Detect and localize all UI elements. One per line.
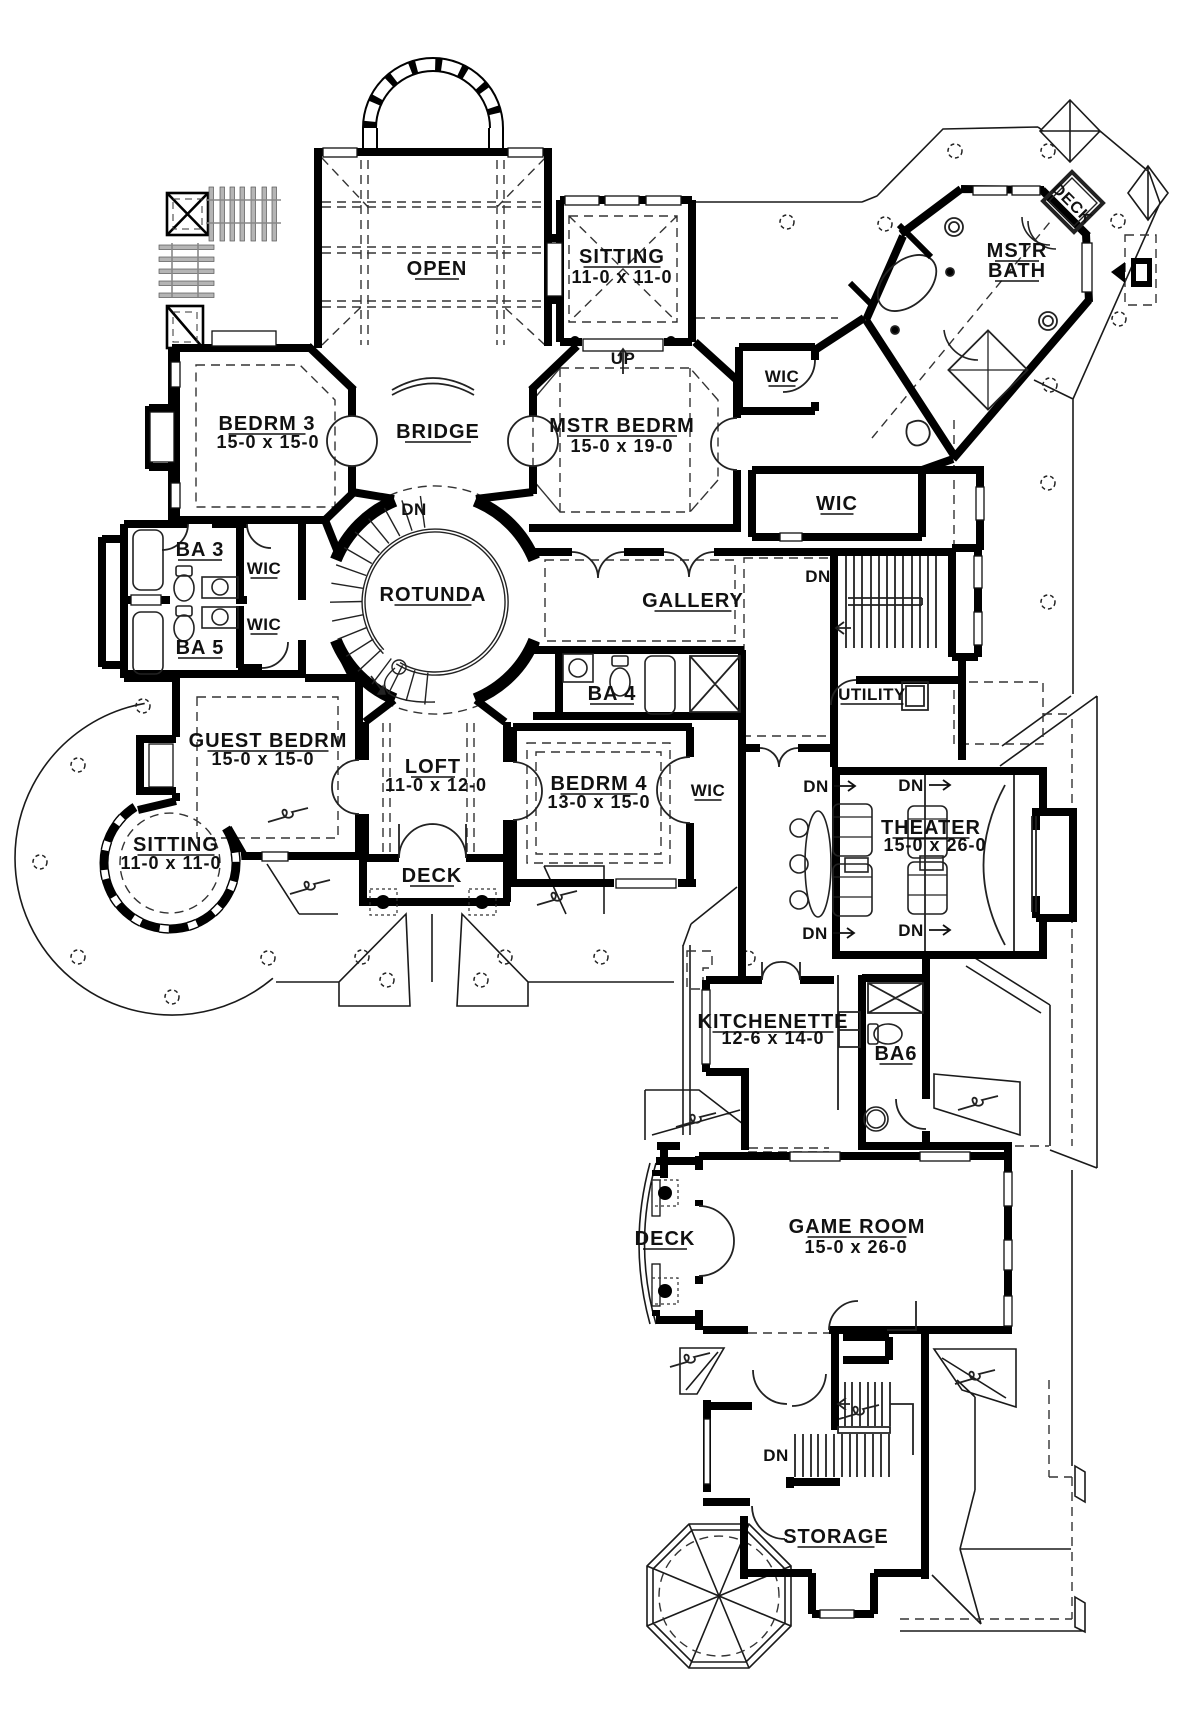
svg-text:15-0 x 15-0: 15-0 x 15-0 [211,749,314,769]
svg-text:BA 5: BA 5 [176,637,225,659]
svg-text:DN: DN [803,777,829,796]
svg-text:15-0 x 26-0: 15-0 x 26-0 [804,1237,907,1257]
svg-text:BRIDGE: BRIDGE [396,421,480,443]
svg-text:15-0 x 26-0: 15-0 x 26-0 [883,835,986,855]
svg-text:WIC: WIC [691,781,726,800]
svg-text:WIC: WIC [247,615,282,634]
svg-text:OPEN: OPEN [407,258,468,280]
svg-text:UP: UP [611,349,636,368]
svg-text:ROTUNDA: ROTUNDA [380,584,487,606]
svg-text:13-0 x 15-0: 13-0 x 15-0 [547,792,650,812]
svg-text:DN: DN [898,921,924,940]
svg-text:DN: DN [763,1446,789,1465]
svg-text:GALLERY: GALLERY [642,590,744,612]
svg-text:11-0 x 11-0: 11-0 x 11-0 [120,853,221,873]
svg-text:12-6 x 14-0: 12-6 x 14-0 [721,1028,824,1048]
svg-text:MSTR BEDRM: MSTR BEDRM [549,415,695,437]
svg-text:DN: DN [805,567,831,586]
svg-text:15-0 x 15-0: 15-0 x 15-0 [216,432,319,452]
svg-text:BA 3: BA 3 [176,539,225,561]
svg-text:11-0 x 11-0: 11-0 x 11-0 [571,267,672,287]
svg-text:UTILITY: UTILITY [838,685,906,704]
svg-text:11-0 x 12-0: 11-0 x 12-0 [385,775,487,795]
svg-text:15-0 x 19-0: 15-0 x 19-0 [570,436,673,456]
svg-text:BA 4: BA 4 [588,683,637,705]
svg-text:BATH: BATH [988,260,1046,282]
svg-text:WIC: WIC [765,367,800,386]
svg-text:GAME ROOM: GAME ROOM [789,1216,926,1238]
svg-text:BA6: BA6 [874,1043,917,1065]
svg-text:DN: DN [898,776,924,795]
svg-text:STORAGE: STORAGE [783,1526,889,1548]
svg-text:DN: DN [802,924,828,943]
svg-text:WIC: WIC [247,559,282,578]
svg-text:MSTR: MSTR [987,240,1048,262]
svg-text:SITTING: SITTING [579,246,665,268]
svg-text:DECK: DECK [635,1228,696,1250]
svg-text:DN: DN [401,500,427,519]
svg-text:WIC: WIC [816,493,858,515]
svg-text:DECK: DECK [402,865,463,887]
